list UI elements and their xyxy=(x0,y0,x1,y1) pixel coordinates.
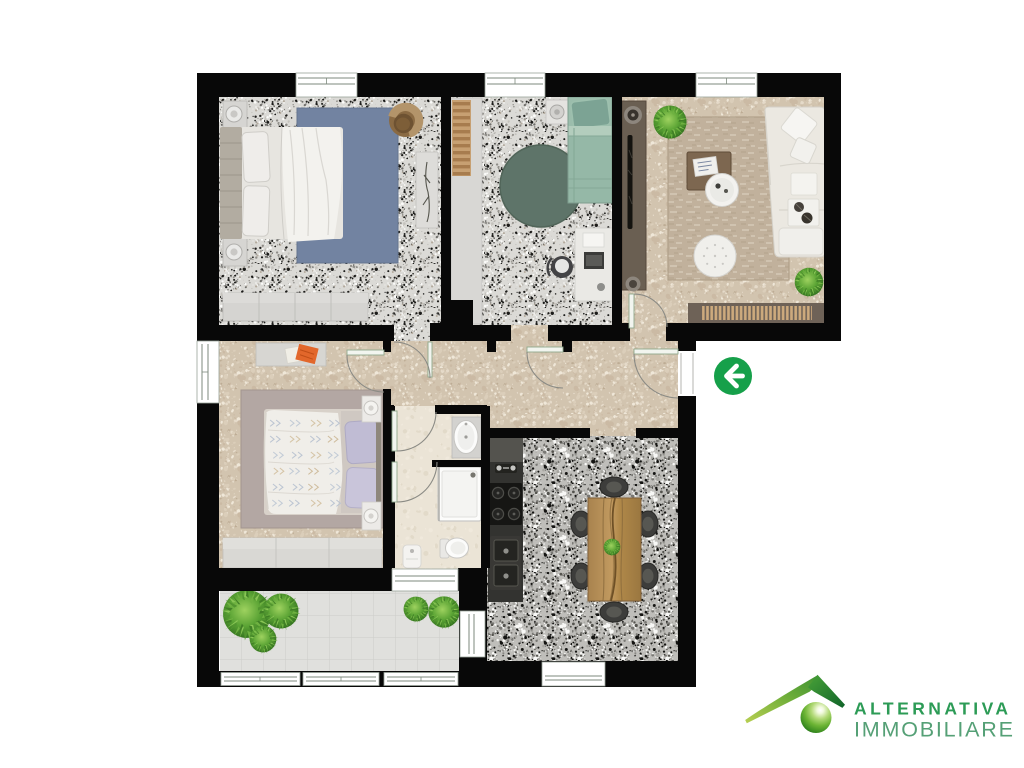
svg-text:ALTERNATIVA: ALTERNATIVA xyxy=(854,699,1012,719)
svg-text:IMMOBILIARE: IMMOBILIARE xyxy=(854,718,1015,742)
